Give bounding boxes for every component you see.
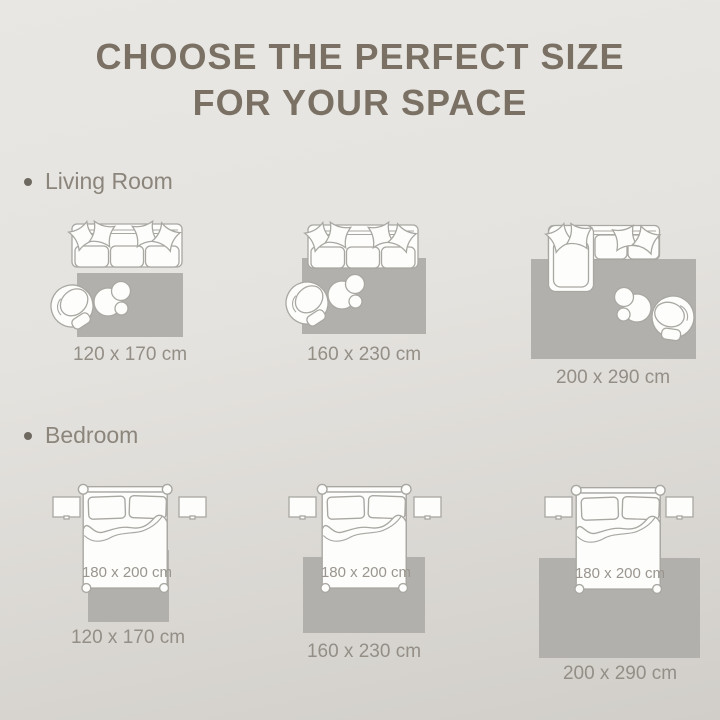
nightstand-icon <box>289 497 316 519</box>
rug-size-label: 200 x 290 cm <box>543 367 683 389</box>
title-line-1: CHOOSE THE PERFECT SIZE <box>95 36 624 77</box>
section-living-room-label: Living Room <box>45 168 173 195</box>
rug-size-label: 120 x 170 cm <box>60 344 200 366</box>
bedroom-option-1: 180 x 200 cm 120 x 170 cm <box>40 480 220 660</box>
bedroom-option-2: 180 x 200 cm 160 x 230 cm <box>275 480 455 670</box>
bed-size-label: 180 x 200 cm <box>306 564 426 581</box>
bedroom-option-3: 180 x 200 cm 200 x 290 cm <box>500 480 710 690</box>
bedroom-scene-1 <box>40 480 220 626</box>
rug-size-label: 200 x 290 cm <box>550 663 690 685</box>
bullet-icon <box>24 432 32 440</box>
rug-size-label: 160 x 230 cm <box>294 344 434 366</box>
rug-size-label: 120 x 170 cm <box>58 627 198 649</box>
nightstand-icon <box>545 497 572 519</box>
living-room-option-3: 200 x 290 cm <box>515 215 710 395</box>
section-living-room: Living Room <box>24 168 173 195</box>
sofa-top-view-icon <box>305 222 418 268</box>
bullet-icon <box>24 178 32 186</box>
nightstand-icon <box>179 497 206 519</box>
sofa-top-view-icon <box>69 221 182 267</box>
living-room-scene-3 <box>515 215 710 367</box>
section-bedroom: Bedroom <box>24 422 138 449</box>
living-room-scene-1 <box>45 215 215 347</box>
living-room-option-2: 160 x 230 cm <box>275 215 453 375</box>
nightstand-icon <box>666 497 693 519</box>
section-bedroom-label: Bedroom <box>45 422 138 449</box>
nightstand-icon <box>414 497 441 519</box>
bedroom-scene-2 <box>275 480 455 638</box>
rug-size-label: 160 x 230 cm <box>294 641 434 663</box>
nightstand-icon <box>53 497 80 519</box>
rug-size-infographic: CHOOSE THE PERFECT SIZE FOR YOUR SPACE L… <box>0 0 720 720</box>
living-room-option-1: 120 x 170 cm <box>45 215 215 375</box>
page-title: CHOOSE THE PERFECT SIZE FOR YOUR SPACE <box>0 34 720 126</box>
title-line-2: FOR YOUR SPACE <box>193 82 528 123</box>
bed-size-label: 180 x 200 cm <box>67 564 187 581</box>
bed-size-label: 180 x 200 cm <box>560 565 680 582</box>
living-room-scene-2 <box>275 215 453 347</box>
